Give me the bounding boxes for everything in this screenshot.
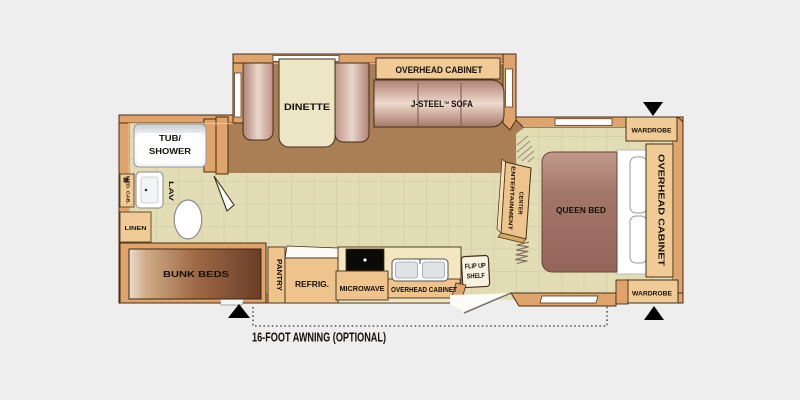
svg-text:QUEEN BED: QUEEN BED [556, 205, 606, 215]
svg-text:PANTRY: PANTRY [275, 259, 282, 291]
svg-text:BUNK BEDS: BUNK BEDS [163, 269, 229, 279]
svg-text:LAV: LAV [167, 181, 174, 202]
svg-text:CENTER: CENTER [516, 191, 523, 214]
svg-text:OVERHEAD CABINET: OVERHEAD CABINET [391, 287, 458, 294]
svg-text:DINETTE: DINETTE [284, 102, 330, 113]
svg-text:J-STEELTM SOFA: J-STEELTM SOFA [411, 99, 473, 110]
svg-text:FLIP UP: FLIP UP [465, 262, 487, 270]
svg-text:16-FOOT AWNING (OPTIONAL): 16-FOOT AWNING (OPTIONAL) [252, 331, 386, 345]
svg-text:LINEN: LINEN [125, 226, 147, 232]
svg-text:OVERHEAD CABINET: OVERHEAD CABINET [396, 65, 483, 76]
svg-text:TUB/: TUB/ [159, 134, 182, 143]
svg-text:MED. CAB.: MED. CAB. [125, 176, 131, 204]
svg-text:MICROWAVE: MICROWAVE [340, 284, 385, 293]
svg-text:OVERHEAD CABINET: OVERHEAD CABINET [657, 154, 667, 267]
svg-text:REFRIG.: REFRIG. [295, 280, 329, 289]
svg-text:SHOWER: SHOWER [149, 147, 191, 156]
svg-text:WARDROBE: WARDROBE [632, 291, 673, 298]
svg-text:SHELF: SHELF [467, 273, 485, 281]
svg-text:WARDROBE: WARDROBE [632, 128, 673, 135]
